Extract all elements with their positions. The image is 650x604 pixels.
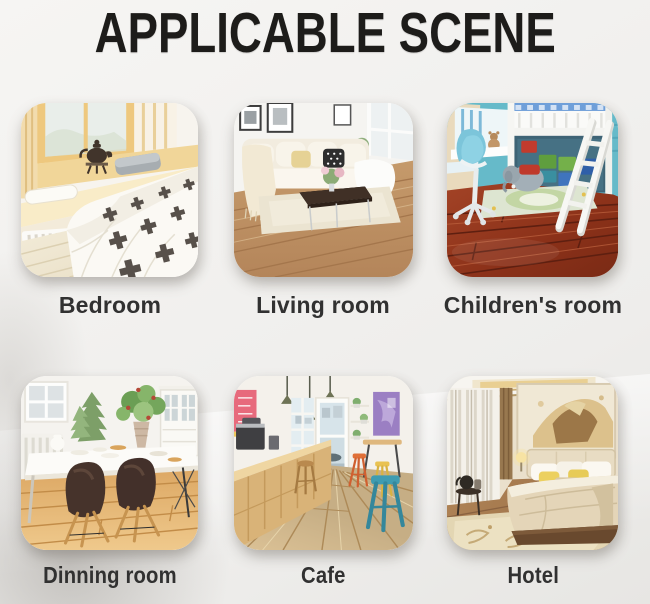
scene-label-dinning-room: Dinning room: [0, 562, 220, 589]
scene-label-cafe-text: Cafe: [301, 562, 346, 589]
childrens-room-photo: [447, 103, 618, 277]
bedroom-photo: [21, 103, 198, 277]
scene-label-bedroom: Bedroom: [0, 292, 220, 319]
scene-label-hotel-text: Hotel: [507, 562, 558, 589]
scene-label-dinning-room-text: Dinning room: [43, 562, 177, 589]
scene-card-living-room: [234, 103, 413, 277]
scene-card-cafe: [234, 376, 413, 550]
page-title-text: APPLICABLE SCENE: [94, 0, 555, 66]
cafe-photo: [234, 376, 413, 550]
dinning-room-photo: [21, 376, 198, 550]
scene-label-hotel: Hotel: [423, 562, 643, 589]
scene-card-bedroom: [21, 103, 198, 277]
scene-label-bedroom-text: Bedroom: [59, 292, 161, 318]
page-title: APPLICABLE SCENE: [0, 0, 650, 72]
scene-label-living-room-text: Living room: [256, 292, 390, 318]
scene-label-living-room: Living room: [213, 292, 433, 319]
scene-label-childrens-room-text: Children's room: [444, 292, 622, 318]
living-room-photo: [234, 103, 413, 277]
applicable-scene-panel: APPLICABLE SCENE: [0, 0, 650, 604]
hotel-photo: [447, 376, 618, 550]
scene-card-hotel: [447, 376, 618, 550]
scene-card-dinning-room: [21, 376, 198, 550]
scene-label-childrens-room: Children's room: [423, 292, 643, 319]
scene-card-childrens-room: [447, 103, 618, 277]
scene-label-cafe: Cafe: [213, 562, 433, 589]
